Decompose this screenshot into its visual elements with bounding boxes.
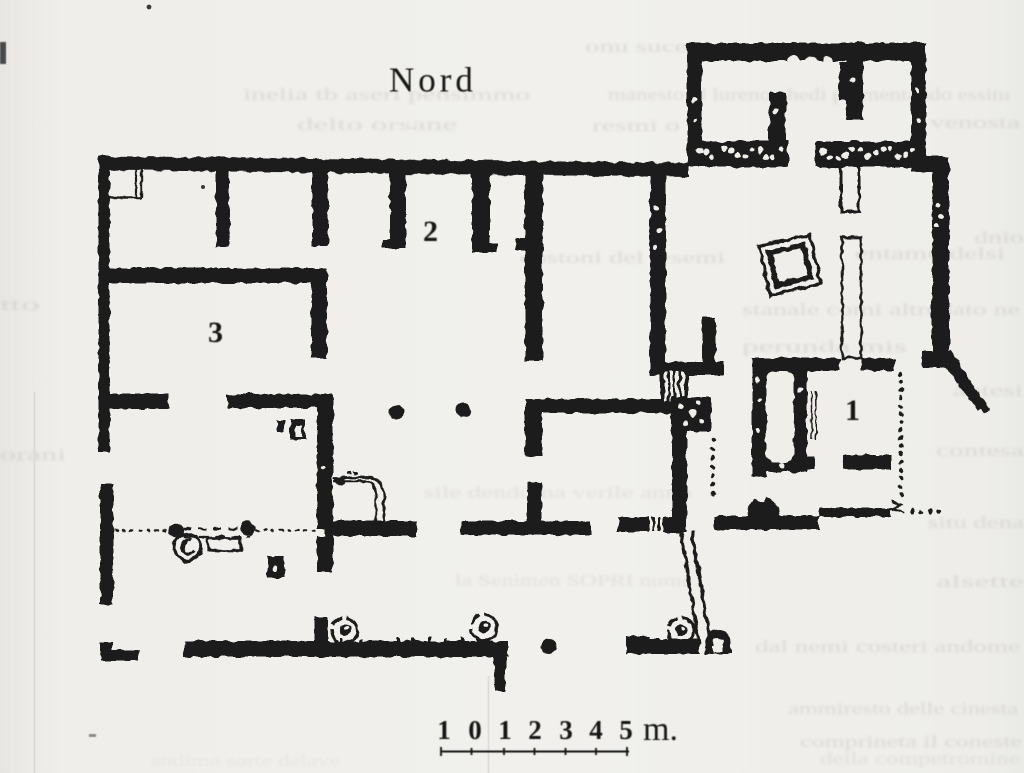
svg-text:entamo delsi: entamo delsi [855,244,1006,263]
svg-text:sile dendoma verile anno: sile dendoma verile anno [424,483,692,502]
svg-text:venosta: venosta [930,113,1021,132]
svg-text:1: 1 [845,394,860,427]
svg-text:tto: tto [0,295,40,314]
svg-text:la Senimen SOPRI numdi: la Senimen SOPRI numdi [455,571,701,590]
svg-text:1: 1 [498,715,512,745]
svg-text:della competromine: della competromine [820,749,1020,768]
svg-text:dal nemi costeri andome: dal nemi costeri andome [755,637,1020,656]
svg-text:alsette: alsette [936,572,1024,591]
svg-text:2: 2 [528,715,542,745]
svg-text:resmi o: resmi o [592,116,680,135]
svg-text:0: 0 [468,715,482,745]
svg-text:andime sorte delave: andime sorte delave [150,751,340,770]
svg-text:m.: m. [643,711,678,748]
svg-text:5: 5 [619,715,633,745]
svg-text:inelia tb aseri pensimmo: inelia tb aseri pensimmo [243,85,530,104]
svg-text:delto orsane: delto orsane [297,115,457,134]
svg-text:4: 4 [589,715,603,745]
svg-text:3: 3 [559,715,573,745]
svg-text:perunda mis: perunda mis [742,337,907,356]
svg-text:costoni del lesemi: costoni del lesemi [520,248,726,267]
svg-text:3: 3 [208,316,223,349]
svg-text:contesa: contesa [936,441,1024,460]
svg-text:situ dena: situ dena [928,513,1024,532]
svg-text:manesto al lureno chedi parmen: manesto al lureno chedi parmentando essi… [608,85,1010,104]
svg-text:2: 2 [423,215,438,248]
svg-text:stanale comi altredato ne: stanale comi altredato ne [742,300,1020,319]
svg-text:Nord: Nord [389,61,477,100]
svg-text:orani: orani [0,445,67,464]
svg-text:1: 1 [437,715,451,745]
svg-text:ammiresto delle cinesta: ammiresto delle cinesta [788,699,1019,718]
